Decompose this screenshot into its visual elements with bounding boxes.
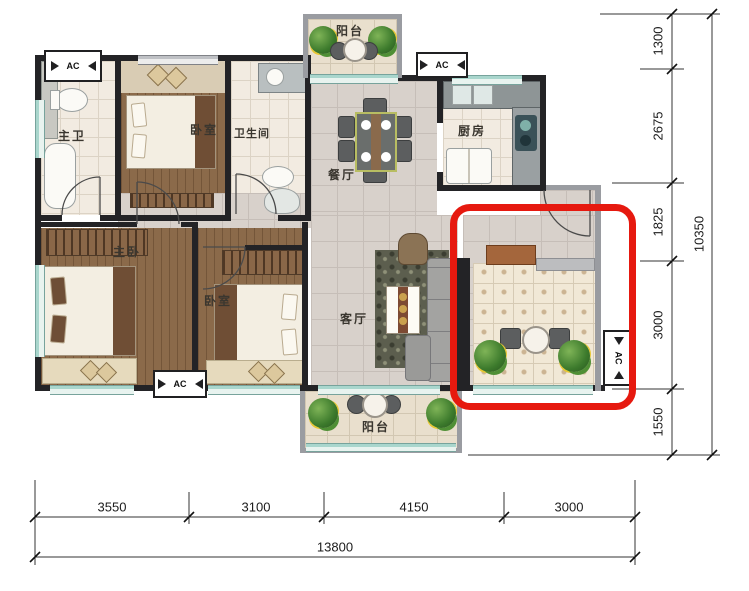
balcony-wall xyxy=(303,14,308,78)
ac-unit-label: AC xyxy=(436,60,449,70)
toilet xyxy=(56,88,88,112)
wardrobe xyxy=(222,250,304,275)
dining-table xyxy=(355,112,397,172)
sofa-chaise xyxy=(405,335,431,381)
wall xyxy=(302,222,308,391)
bay-window-cushion xyxy=(206,360,304,384)
balcony-table xyxy=(343,38,367,62)
room-label-kitchen: 厨房 xyxy=(458,122,486,139)
plant xyxy=(426,398,456,428)
dim-right-1: 1300 xyxy=(651,27,666,56)
dining-chair xyxy=(338,140,355,162)
window xyxy=(35,265,45,357)
wall xyxy=(100,215,121,221)
highlight-box xyxy=(450,204,636,410)
ac-unit-bottom-middle: AC xyxy=(153,370,207,398)
kitchen-sink xyxy=(473,85,493,105)
ac-arrow-icon xyxy=(51,61,64,71)
window xyxy=(50,385,134,395)
dining-chair xyxy=(395,140,412,162)
room-label-master-bath: 主卫 xyxy=(58,127,86,144)
kitchen-sink xyxy=(452,85,472,105)
stove xyxy=(515,115,537,151)
ac-unit-top-right: AC xyxy=(416,52,468,78)
dim-bottom-total: 13800 xyxy=(317,540,353,555)
wall xyxy=(225,55,231,221)
ac-arrow-icon xyxy=(158,379,171,389)
wall xyxy=(35,215,62,221)
wall xyxy=(245,245,308,250)
dining-chair xyxy=(395,116,412,138)
window xyxy=(310,74,398,84)
toilet-tank xyxy=(50,90,60,110)
dim-right-5: 1550 xyxy=(651,408,666,437)
ac-arrow-icon xyxy=(452,60,465,70)
master-bed xyxy=(44,266,136,356)
balcony-wall xyxy=(300,391,305,453)
room-label-bedroom-top: 卧室 xyxy=(190,121,218,138)
room-label-bathroom: 卫生间 xyxy=(234,125,270,141)
wall-light xyxy=(546,185,600,190)
room-label-master-bedroom: 主卧 xyxy=(113,243,141,260)
tv-cabinet xyxy=(130,193,214,208)
room-label-dining: 餐厅 xyxy=(328,166,356,183)
window xyxy=(318,385,440,395)
shower xyxy=(264,188,300,214)
room-label-living: 客厅 xyxy=(340,310,368,327)
floor-plan-canvas: 主卫 卧室 卫生间 餐厅 厨房 主卧 卧室 客厅 阳台 阳台 AC AC AC … xyxy=(0,0,749,591)
wall xyxy=(437,185,546,191)
balcony-wall xyxy=(303,14,402,19)
dim-right-3: 1825 xyxy=(651,208,666,237)
balcony-table xyxy=(362,392,388,418)
window xyxy=(306,443,456,452)
balcony-wall xyxy=(397,14,402,78)
ac-unit-top-left: AC xyxy=(44,50,102,82)
dim-right-2: 2675 xyxy=(651,112,666,141)
plant xyxy=(308,398,338,428)
dim-right-total: 10350 xyxy=(692,216,707,252)
dim-right-4: 3000 xyxy=(651,311,666,340)
room-label-balcony-top: 阳台 xyxy=(336,22,364,39)
wall xyxy=(35,222,137,227)
window xyxy=(35,100,45,158)
dining-chair xyxy=(338,116,355,138)
wall xyxy=(192,222,198,391)
bay-window-cushion xyxy=(42,358,137,384)
dim-bottom-3: 4150 xyxy=(400,500,429,515)
ac-unit-label: AC xyxy=(174,379,187,389)
ac-arrow-icon xyxy=(83,61,96,71)
basin xyxy=(266,68,284,86)
wall xyxy=(540,75,546,191)
window xyxy=(208,385,300,395)
wall xyxy=(278,215,311,221)
ac-unit-label: AC xyxy=(67,61,80,71)
ac-arrow-icon xyxy=(420,60,433,70)
dim-bottom-2: 3100 xyxy=(242,500,271,515)
coffee-table xyxy=(386,286,420,334)
wall xyxy=(121,215,231,221)
toilet xyxy=(262,166,294,188)
room-label-balcony-bottom: 阳台 xyxy=(362,418,390,435)
armchair xyxy=(398,233,428,265)
wall xyxy=(437,75,443,123)
dim-bottom-1: 3550 xyxy=(98,500,127,515)
room-label-bedroom-second: 卧室 xyxy=(204,292,232,309)
bathtub xyxy=(44,143,76,209)
ac-arrow-icon xyxy=(190,379,203,389)
window xyxy=(138,55,218,65)
fridge xyxy=(446,148,492,184)
wall xyxy=(115,55,121,221)
dim-bottom-4: 3000 xyxy=(555,500,584,515)
